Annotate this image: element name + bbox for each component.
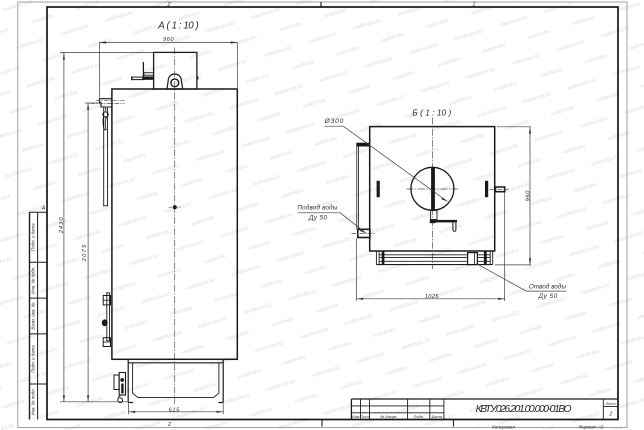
svg-text:Инв. № дубл.: Инв. № дубл. [30,267,35,294]
svg-text:Взам. инв. №: Взам. инв. № [30,302,35,329]
svg-text:Лист: Лист [359,414,371,419]
svg-text:615: 615 [169,407,181,413]
svg-text:Копировал: Копировал [492,425,515,430]
svg-text:Отвод воды: Отвод воды [529,283,566,290]
svg-text:Подп. и дата: Подп. и дата [30,345,35,373]
svg-text:1025: 1025 [425,294,439,300]
svg-text:А ( 1 : 10 ): А ( 1 : 10 ) [157,20,199,31]
svg-text:Ду 50: Ду 50 [308,215,328,222]
svg-text:Ду 50: Ду 50 [538,293,558,300]
svg-text:Подп.: Подп. [414,414,424,419]
svg-text:КВТУ.026.201.00.000-01ВО: КВТУ.026.201.00.000-01ВО [476,404,572,415]
svg-text:960: 960 [526,190,532,202]
svg-text:Формат А3: Формат А3 [578,425,604,430]
svg-text:Ø300: Ø300 [324,118,344,125]
svg-text:2: 2 [608,412,612,418]
svg-text:Лист: Лист [604,401,616,406]
svg-text:2: 2 [167,422,171,428]
svg-text:№ докум.: № докум. [380,414,397,419]
svg-text:Б ( 1 : 10 ): Б ( 1 : 10 ) [412,107,451,117]
svg-text:Инв. № подл.: Инв. № подл. [30,388,35,415]
svg-text:960: 960 [163,37,174,43]
svg-text:Дата: Дата [431,414,443,419]
svg-text:2075: 2075 [82,244,88,262]
svg-text:2430: 2430 [59,217,65,235]
svg-text:Подп. и дата: Подп. и дата [30,223,35,251]
svg-text:Подвод воды: Подвод воды [297,205,337,212]
svg-text:А: А [41,206,46,212]
